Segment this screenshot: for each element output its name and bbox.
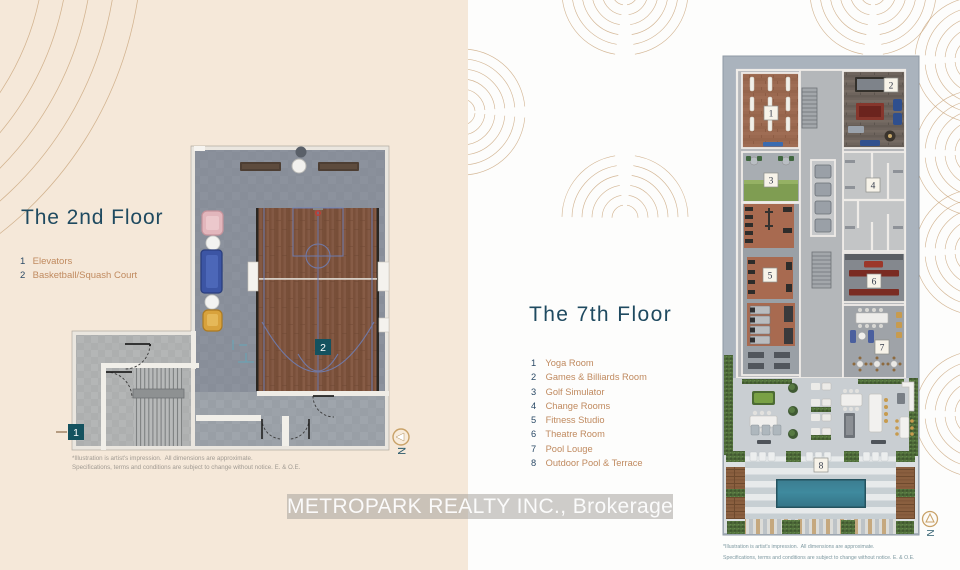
svg-text:8: 8 xyxy=(819,462,824,472)
